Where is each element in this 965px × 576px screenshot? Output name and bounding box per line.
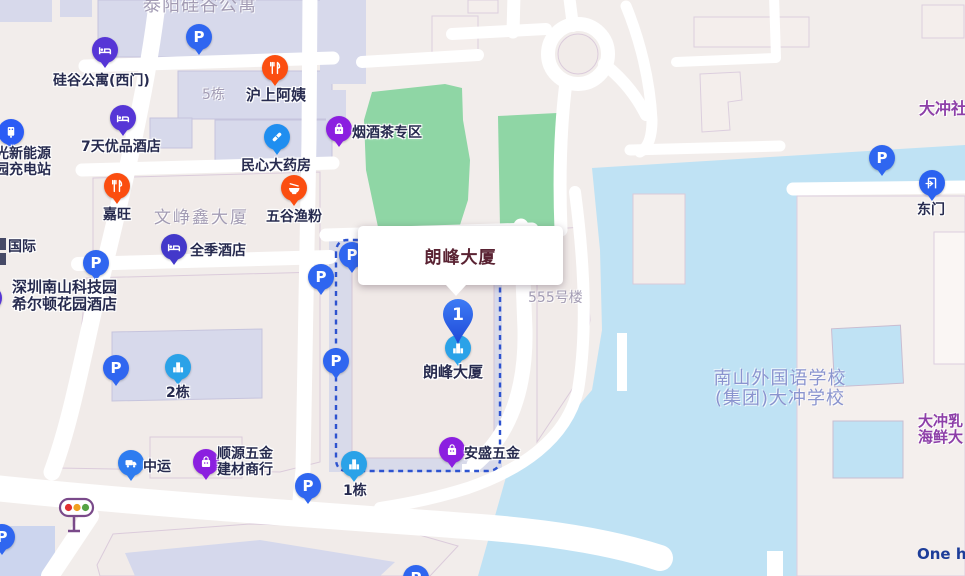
poi-label[interactable]: 光新能源 园充电站 xyxy=(0,146,51,178)
place-infobox[interactable]: 朗峰大厦 xyxy=(358,226,563,285)
school-building xyxy=(934,232,965,364)
poi-label[interactable]: 全季酒店 xyxy=(190,240,246,260)
restaurant-icon[interactable] xyxy=(104,173,130,199)
area-label: 555号楼 xyxy=(528,287,583,307)
poi-label[interactable]: 7天优品酒店 xyxy=(81,136,161,156)
school-label: 南山外国语学校 (集团)大冲学校 xyxy=(690,369,870,409)
poi-label[interactable]: 中运 xyxy=(143,456,171,476)
poi-label[interactable]: 深圳南山科技园 希尔顿花园酒店 xyxy=(12,279,117,313)
area-label: 泰阳硅谷公寓 xyxy=(143,0,257,17)
map-canvas[interactable]: P P P P P P P P P P 硅谷公寓(西门) 7天优品酒店 全季酒店… xyxy=(0,0,965,576)
noodle-bowl-icon[interactable] xyxy=(281,175,307,201)
poi-label[interactable]: 安盛五金 xyxy=(464,443,520,463)
area-label: 5栋 xyxy=(202,84,225,104)
bldg-nw-1 xyxy=(0,0,52,22)
shop-icon[interactable] xyxy=(326,116,352,142)
hotel-icon[interactable] xyxy=(92,37,118,63)
shop-icon[interactable] xyxy=(193,449,219,475)
poi-label[interactable]: 民心大药房 xyxy=(241,155,311,175)
poi-label[interactable]: 2栋 xyxy=(166,382,190,402)
poi-label[interactable]: 五谷渔粉 xyxy=(266,206,322,226)
poi-label[interactable]: 嘉旺 xyxy=(103,204,131,224)
hotel-icon[interactable] xyxy=(161,234,187,260)
waterside-building xyxy=(633,194,685,284)
poi-label[interactable]: 硅谷公寓(西门) xyxy=(53,70,150,90)
marker-number: 1 xyxy=(452,305,464,325)
hotel-icon[interactable] xyxy=(110,105,136,131)
poi-label[interactable]: 1栋 xyxy=(343,480,367,500)
pier-2 xyxy=(767,551,783,576)
area-label: 文峥鑫大厦 xyxy=(154,203,249,228)
pier-1 xyxy=(617,333,627,391)
infobox-title: 朗峰大厦 xyxy=(425,243,497,268)
ne-building-1 xyxy=(694,17,809,47)
restaurant-icon[interactable] xyxy=(262,55,288,81)
poi-label[interactable]: 沪上阿姨 xyxy=(246,84,306,105)
poi-label[interactable]: 顺源五金 建材商行 xyxy=(217,446,273,478)
building-icon[interactable] xyxy=(165,354,191,380)
poi-label[interactable]: 烟酒茶专区 xyxy=(352,122,422,142)
parking-icon[interactable]: P xyxy=(186,24,212,50)
poi-label[interactable]: 朗峰大厦 xyxy=(423,361,483,382)
building-icon[interactable] xyxy=(341,451,367,477)
parking-icon[interactable]: P xyxy=(103,355,129,381)
clipped-glyph xyxy=(0,253,6,265)
district-label: 大冲乳 海鲜大 xyxy=(918,413,963,445)
gate-icon[interactable] xyxy=(919,170,945,196)
park-west xyxy=(364,84,470,227)
english-label: One ha xyxy=(917,545,965,563)
parking-icon[interactable]: P xyxy=(323,348,349,374)
parking-icon[interactable]: P xyxy=(295,473,321,499)
mid-building-2 xyxy=(468,0,498,13)
parking-icon[interactable]: P xyxy=(83,250,109,276)
truck-icon[interactable] xyxy=(118,450,144,476)
poi-label: 国际 xyxy=(8,236,36,256)
ne-building-3 xyxy=(922,5,964,38)
bldg-mid-strip xyxy=(320,0,366,84)
parking-icon[interactable]: P xyxy=(308,264,334,290)
shop-icon[interactable] xyxy=(439,437,465,463)
school-pool-2 xyxy=(833,421,903,478)
district-label: 大冲社 xyxy=(919,95,965,119)
clipped-glyph xyxy=(0,238,6,250)
bldg-nw-2 xyxy=(60,0,92,17)
pharmacy-icon[interactable] xyxy=(264,124,290,150)
parking-icon[interactable]: P xyxy=(869,145,895,171)
poi-label[interactable]: 东门 xyxy=(917,199,945,219)
